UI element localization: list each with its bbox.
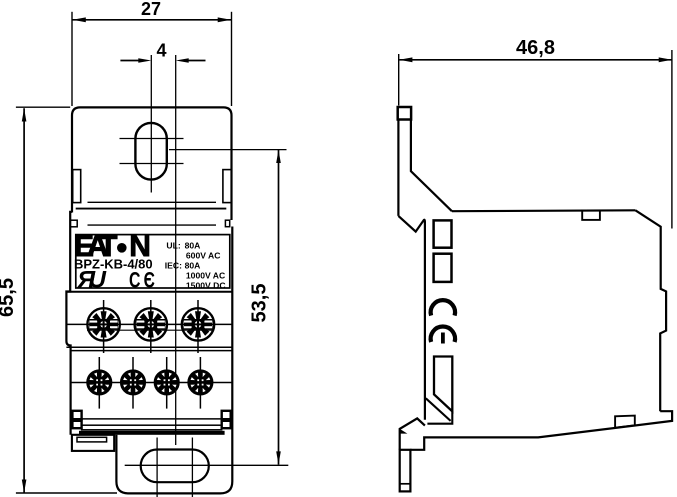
svg-text:C: C [129, 269, 141, 293]
svg-text:80A: 80A [185, 241, 201, 251]
svg-text:Є: Є [144, 269, 156, 293]
svg-text:46,8: 46,8 [516, 37, 555, 59]
svg-text:65,5: 65,5 [0, 278, 18, 317]
svg-text:UL:: UL: [166, 241, 180, 251]
svg-text:4: 4 [156, 41, 166, 61]
svg-text:80A: 80A [185, 261, 201, 271]
svg-text:IEC:: IEC: [165, 261, 182, 271]
svg-text:53,5: 53,5 [249, 284, 271, 323]
svg-text:ЯU: ЯU [77, 267, 107, 294]
svg-text:27: 27 [141, 0, 161, 19]
svg-text:600V AC: 600V AC [186, 251, 221, 261]
svg-text:1500V DC: 1500V DC [186, 281, 226, 291]
svg-text:1000V AC: 1000V AC [186, 271, 225, 281]
